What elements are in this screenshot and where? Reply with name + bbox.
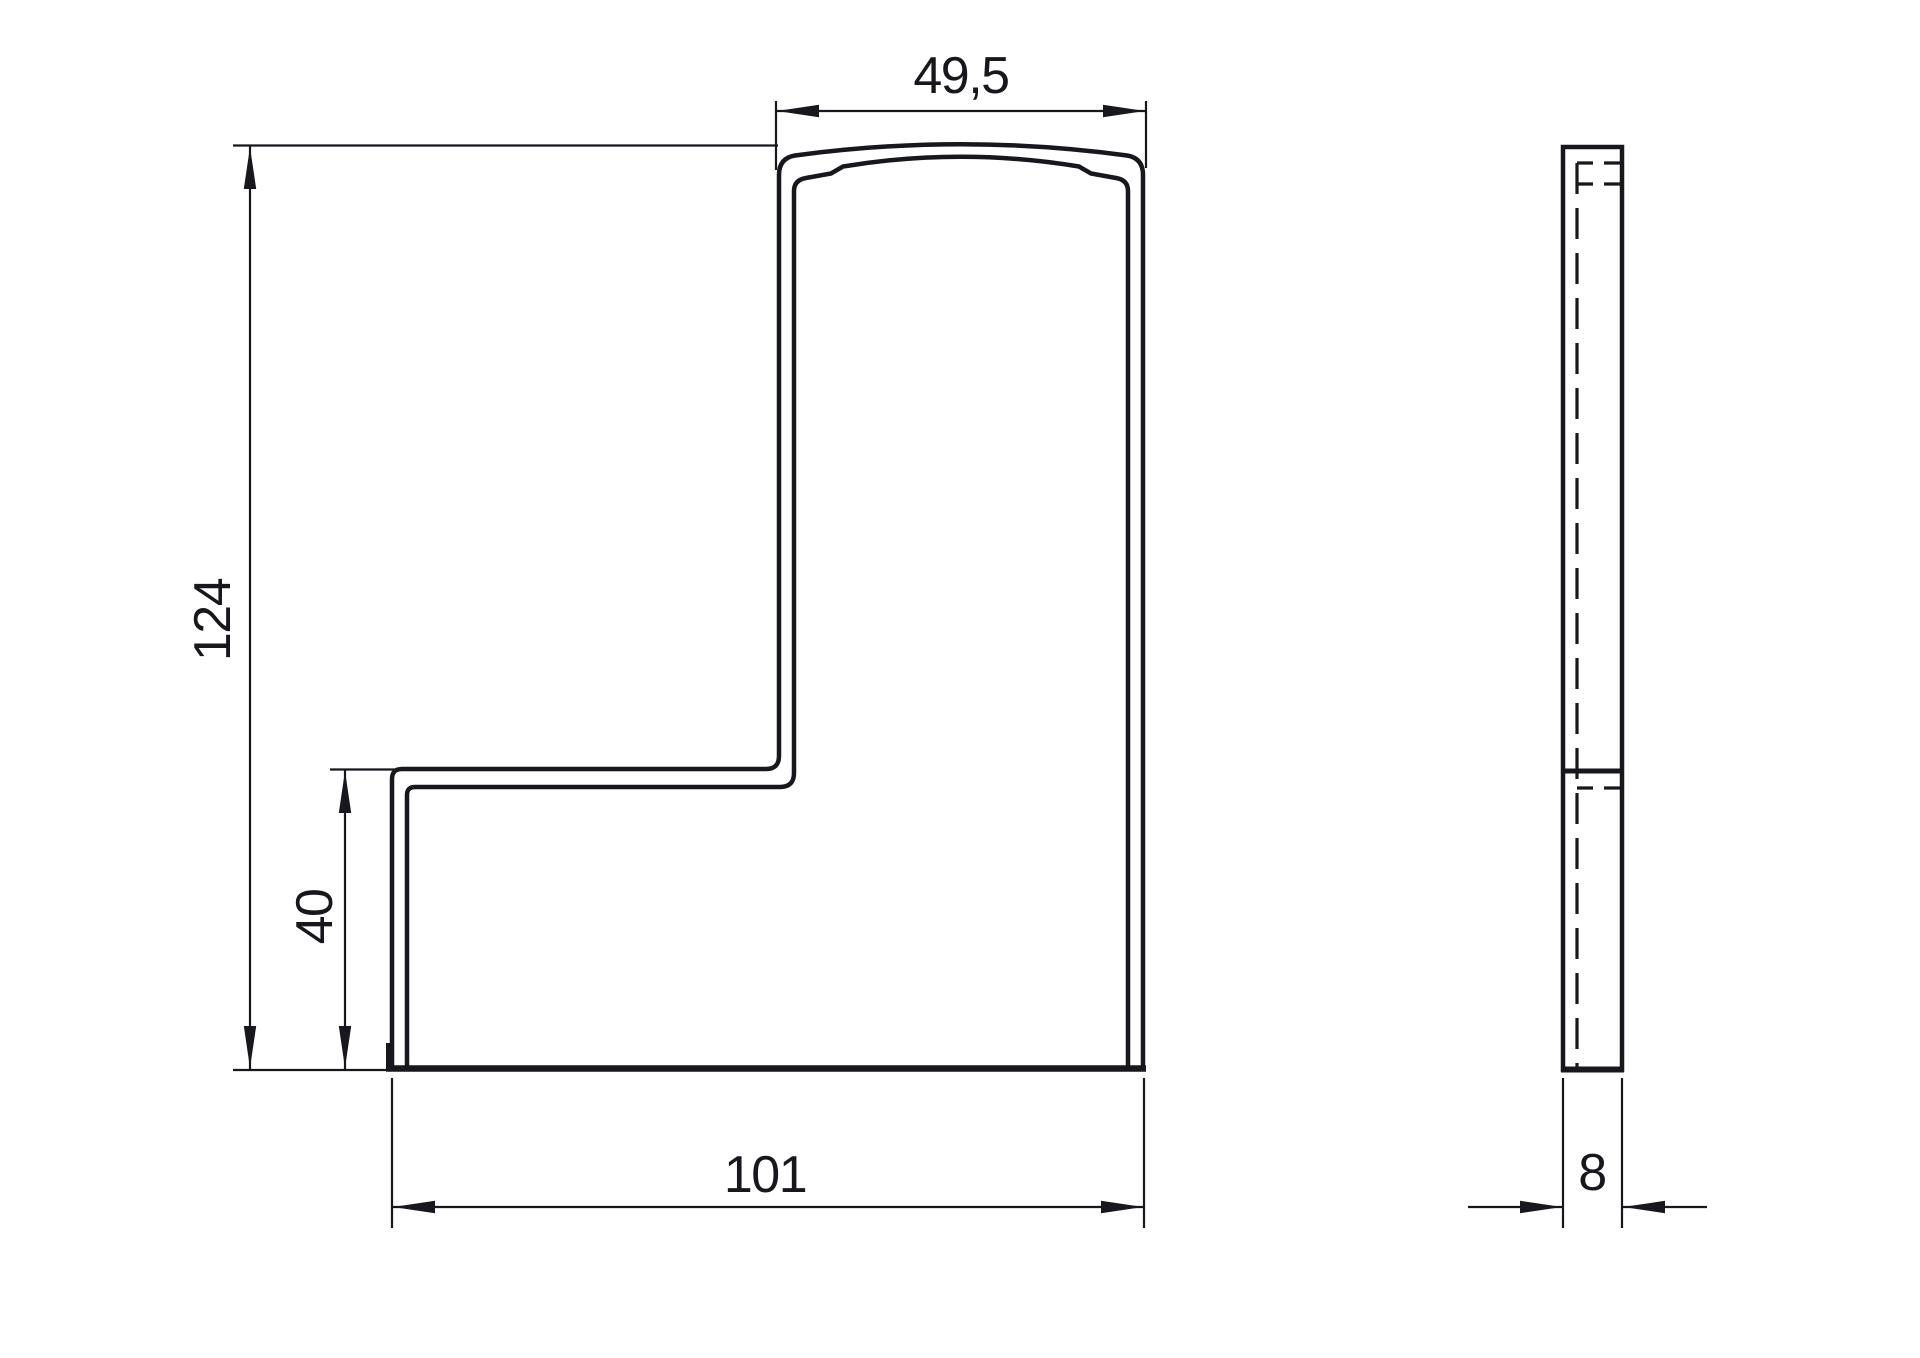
side-view: [1561, 147, 1624, 1070]
side-outline: [1563, 147, 1622, 1070]
dimension-label-overall-height: 124: [184, 578, 242, 661]
technical-drawing-sheet: 49,5 124 40 101 8: [0, 0, 1920, 1358]
dimension-arrowheads: [244, 105, 1665, 1213]
arrowhead-up-icon: [244, 147, 256, 189]
dimension-lines: [233, 101, 1707, 1228]
front-outer-contour: [392, 144, 1143, 1069]
arrowhead-right-icon: [1101, 1201, 1143, 1213]
arrowhead-left-icon: [777, 105, 819, 117]
arrowhead-up-icon: [339, 771, 351, 813]
front-inner-rim: [407, 157, 1128, 1069]
object-lines: [386, 144, 1624, 1070]
front-view: [386, 144, 1146, 1069]
dimension-label-thickness: 8: [1578, 1144, 1605, 1202]
arrowhead-right-icon: [1103, 105, 1145, 117]
arrowhead-right-icon: [1520, 1201, 1562, 1213]
dimension-label-top-width: 49,5: [913, 47, 1008, 105]
dimension-top-width-lines: [776, 101, 1146, 170]
technical-drawing: 49,5 124 40 101 8: [0, 0, 1920, 1358]
arrowhead-left-icon: [393, 1201, 435, 1213]
arrowhead-left-icon: [1623, 1201, 1665, 1213]
dimension-label-bottom-width: 101: [724, 1146, 806, 1204]
dimension-label-step-height: 40: [286, 890, 344, 945]
dimension-labels: 49,5 124 40 101 8: [184, 47, 1606, 1204]
arrowhead-down-icon: [339, 1026, 351, 1068]
arrowhead-down-icon: [244, 1026, 256, 1068]
hidden-lines: [1577, 163, 1621, 1067]
